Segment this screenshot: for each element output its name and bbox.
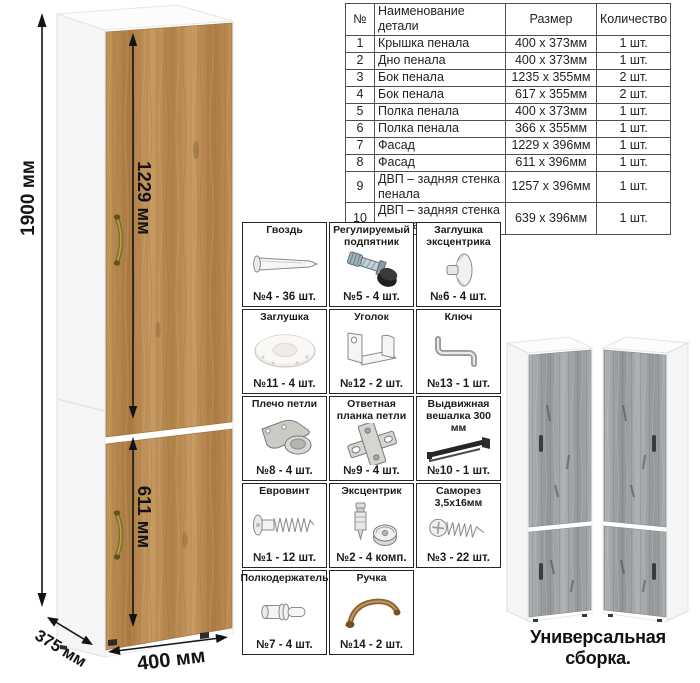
dim-upper-door-label: 1229 мм — [134, 161, 155, 235]
upper-door — [106, 23, 232, 437]
hardware-item-name: Эксцентрик — [341, 486, 401, 498]
hardware-item-nail: Гвоздь №4 - 36 шт. — [242, 222, 327, 307]
hardware-item-name: Заглушка — [260, 312, 309, 324]
self-tapping-screw-icon — [428, 510, 490, 553]
hardware-grid-empty-cell — [416, 570, 501, 655]
hardware-item-plug: Заглушка №11 - 4 шт. — [242, 309, 327, 394]
hardware-item-cam-cap: Заглушка эксцентрика №6 - 4 шт. — [416, 222, 501, 307]
col-qty: Количество — [597, 4, 671, 36]
hardware-item-qty: №9 - 4 шт. — [343, 465, 399, 477]
corner-bracket-icon — [342, 324, 402, 378]
pullout-hanger-icon — [426, 434, 492, 465]
gray-upper-door-right — [604, 350, 666, 527]
hardware-item-qty: №4 - 36 шт. — [253, 291, 316, 303]
hardware-item-qty: №11 - 4 шт. — [253, 378, 315, 390]
hardware-item-qty: №14 - 2 шт. — [340, 639, 403, 651]
gray-cabinet-left — [507, 337, 592, 622]
cabinet-side-face — [57, 14, 105, 657]
col-number: № — [346, 4, 375, 36]
table-row: 9ДВП – задняя стенка пенала1257 х 396мм1… — [346, 171, 671, 203]
hardware-item-name: Уголок — [354, 312, 389, 324]
gray-handle — [652, 435, 656, 452]
hardware-grid: Гвоздь №4 - 36 шт. Регулируемый подпятни… — [242, 222, 501, 655]
universal-assembly-caption: Универсальная сборка. — [496, 627, 700, 669]
hardware-item-name: Выдвижная вешалка 300 мм — [418, 399, 499, 434]
parts-table: № Наименование детали Размер Количество … — [345, 3, 671, 235]
hardware-item-qty: №6 - 4 шт. — [430, 291, 486, 303]
shelf-pin-icon — [258, 585, 312, 639]
hardware-item-hinge-arm: Плечо петли №8 - 4 шт. — [242, 396, 327, 481]
gray-handle — [539, 563, 543, 580]
cam-cap-icon — [438, 249, 480, 292]
hardware-item-name: Плечо петли — [252, 399, 317, 411]
hardware-item-qty: №5 - 4 шт. — [343, 291, 399, 303]
hardware-item-cam-lock: Эксцентрик №2 - 4 комп — [329, 483, 414, 568]
hardware-item-hex-key: Ключ №13 - 1 шт. — [416, 309, 501, 394]
cam-lock-icon — [343, 498, 401, 552]
col-name: Наименование детали — [375, 4, 506, 36]
table-row: 1Крышка пенала400 х 373мм1 шт. — [346, 35, 671, 52]
parts-table-header: № Наименование детали Размер Количество — [346, 4, 671, 36]
cabinet-illustration: 1900 мм 1229 мм 611 мм 400 мм 375 мм — [0, 0, 242, 683]
gray-cabinet-right — [603, 337, 688, 622]
hardware-item-name: Ручка — [356, 573, 386, 585]
hardware-item-shelf-pin: Полкодержатель №7 - 4 шт. — [242, 570, 327, 655]
gray-upper-door-left — [529, 350, 591, 527]
hardware-item-name: Евровинт — [259, 486, 310, 498]
plug-icon — [251, 324, 319, 378]
table-row: 3Бок пенала1235 х 355мм2 шт. — [346, 69, 671, 86]
hardware-item-name: Гвоздь — [266, 225, 303, 237]
universal-assembly-illustration — [503, 335, 697, 627]
hardware-item-adjustable-foot: Регулируемый подпятник — [329, 222, 414, 307]
hardware-item-name: Заглушка эксцентрика — [418, 225, 499, 249]
assembly-sheet: 1900 мм 1229 мм 611 мм 400 мм 375 мм № Н… — [0, 0, 700, 683]
table-row: 7Фасад1229 х 396мм1 шт. — [346, 137, 671, 154]
hardware-item-name: Саморез 3,5х16мм — [418, 486, 499, 510]
hardware-item-euro-screw: Евровинт №1 - 12 шт. — [242, 483, 327, 568]
hardware-item-qty: №12 - 2 шт. — [340, 378, 403, 390]
hardware-item-qty: №1 - 12 шт. — [253, 552, 316, 564]
hardware-item-qty: №8 - 4 шт. — [256, 465, 312, 477]
hardware-item-self-tapping-screw: Саморез 3,5х16мм №3 - 22 шт. — [416, 483, 501, 568]
hardware-item-handle: Ручка №14 - 2 шт. — [329, 570, 414, 655]
dim-height-label: 1900 мм — [18, 160, 39, 236]
hardware-item-name: Ответная планка петли — [331, 399, 412, 423]
hardware-item-name: Ключ — [445, 312, 473, 324]
hinge-plate-icon — [344, 423, 400, 466]
hardware-item-qty: №2 - 4 комп. — [336, 552, 406, 564]
hardware-item-qty: №7 - 4 шт. — [256, 639, 312, 651]
lower-door — [106, 429, 232, 650]
gray-lower-door-left — [529, 526, 591, 617]
hardware-item-qty: №13 - 1 шт. — [427, 378, 490, 390]
euro-screw-icon — [250, 498, 320, 552]
gray-lower-door-right — [604, 526, 666, 617]
dim-lower-door-label: 611 мм — [134, 486, 155, 548]
table-row: 8Фасад611 х 396мм1 шт. — [346, 154, 671, 171]
table-row: 4Бок пенала617 х 355мм2 шт. — [346, 86, 671, 103]
gray-handle — [539, 435, 543, 452]
hardware-item-pullout-hanger: Выдвижная вешалка 300 мм №10 - 1 шт. — [416, 396, 501, 481]
hinge-arm-icon — [254, 411, 316, 465]
hardware-item-qty: №3 - 22 шт. — [427, 552, 490, 564]
hardware-item-name: Полкодержатель — [240, 573, 328, 585]
hardware-item-hinge-plate: Ответная планка петли №9 - 4 шт. — [329, 396, 414, 481]
nail-icon — [250, 237, 320, 291]
hex-key-icon — [429, 324, 489, 378]
table-row: 2Дно пенала400 х 373мм1 шт. — [346, 52, 671, 69]
adjustable-foot-icon — [342, 249, 402, 292]
hardware-item-qty: №10 - 1 шт. — [427, 465, 490, 477]
hardware-item-corner-bracket: Уголок №12 - 2 шт. — [329, 309, 414, 394]
hardware-item-name: Регулируемый подпятник — [331, 225, 412, 249]
col-size: Размер — [506, 4, 597, 36]
table-row: 5Полка пенала400 х 373мм1 шт. — [346, 103, 671, 120]
gray-handle — [652, 563, 656, 580]
table-row: 6Полка пенала366 х 355мм1 шт. — [346, 120, 671, 137]
handle-icon — [341, 585, 403, 639]
